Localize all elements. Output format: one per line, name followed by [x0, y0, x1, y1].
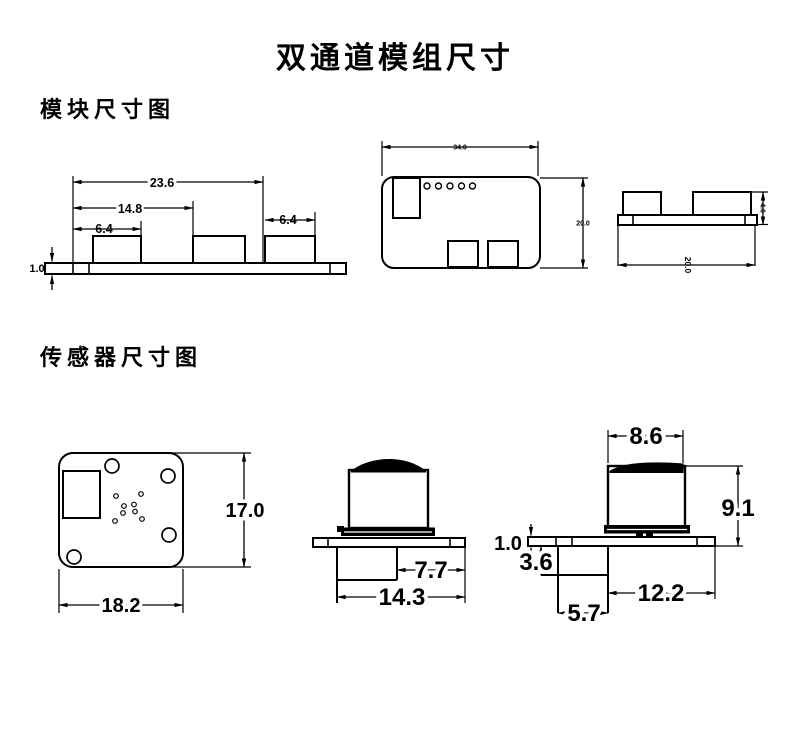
base-plate [313, 538, 465, 547]
dim-outer-width: 14.3 [379, 584, 426, 611]
dim-total-height: 9.1 [721, 495, 754, 522]
dim-right-box-width: 6.4 [279, 213, 296, 227]
dim-plate-thickness: 1.0 [29, 263, 44, 275]
module-end-view: 20.0 4.6 [618, 192, 768, 274]
pin-hole [459, 183, 465, 189]
component-box [193, 236, 245, 263]
mounting-hole [67, 550, 81, 564]
component-pad [488, 241, 518, 267]
sensor-can [349, 470, 428, 528]
pin-hole [424, 183, 430, 189]
dim-board-depth: 20.0 [576, 221, 590, 228]
pin-hole [470, 183, 476, 189]
pin-hole-cluster [113, 492, 145, 524]
sensor-lens [351, 459, 426, 473]
pin-hole [436, 183, 442, 189]
dim-board-width: 34.0 [453, 145, 467, 152]
dim-board-height: 17.0 [226, 500, 265, 522]
sensor-front-view: 7.7 14.3 [313, 459, 465, 611]
dim-cap-width: 8.6 [629, 423, 662, 450]
connector-block [63, 471, 100, 518]
component-box [693, 192, 751, 215]
component-box [265, 236, 315, 263]
dim-box-height: 4.6 [759, 203, 766, 213]
dim-overall-width: 23.6 [150, 176, 174, 190]
dim-left-box-width: 6.4 [95, 222, 112, 236]
technical-drawing-page: 双通道模组尺寸 模块尺寸图 传感器尺寸图 [0, 0, 790, 747]
dim-board-depth: 20.0 [683, 257, 693, 274]
pin-hole [447, 183, 453, 189]
dim-mid-width: 14.8 [118, 202, 142, 216]
component-box [93, 236, 141, 263]
base-plate [618, 215, 757, 225]
drawing-canvas: 23.6 14.8 6.4 6.4 1.0 34.0 20.0 [0, 0, 790, 747]
connector-block [393, 178, 420, 218]
mounting-hole [161, 469, 175, 483]
sensor-can [608, 466, 685, 528]
mounting-hole [105, 459, 119, 473]
module-side-view: 23.6 14.8 6.4 6.4 1.0 [29, 176, 346, 290]
dim-step-height: 3.6 [519, 549, 552, 576]
component-box [623, 192, 661, 215]
component-pad [448, 241, 478, 267]
module-board [382, 177, 540, 268]
dim-offset-width: 5.7 [567, 600, 600, 627]
dim-board-width: 18.2 [102, 595, 141, 617]
sensor-top-view: 17.0 18.2 [59, 453, 264, 617]
dim-body-width: 12.2 [638, 580, 685, 607]
module-top-view: 34.0 20.0 [382, 141, 590, 268]
sensor-lens [610, 462, 684, 473]
dim-plate-thickness: 1.0 [494, 533, 522, 555]
mounting-hole [162, 528, 176, 542]
sensor-side-view: 8.6 1.0 3.6 12.2 5.7 [494, 423, 755, 627]
dim-inner-width: 7.7 [414, 557, 447, 584]
base-plate [45, 263, 346, 274]
